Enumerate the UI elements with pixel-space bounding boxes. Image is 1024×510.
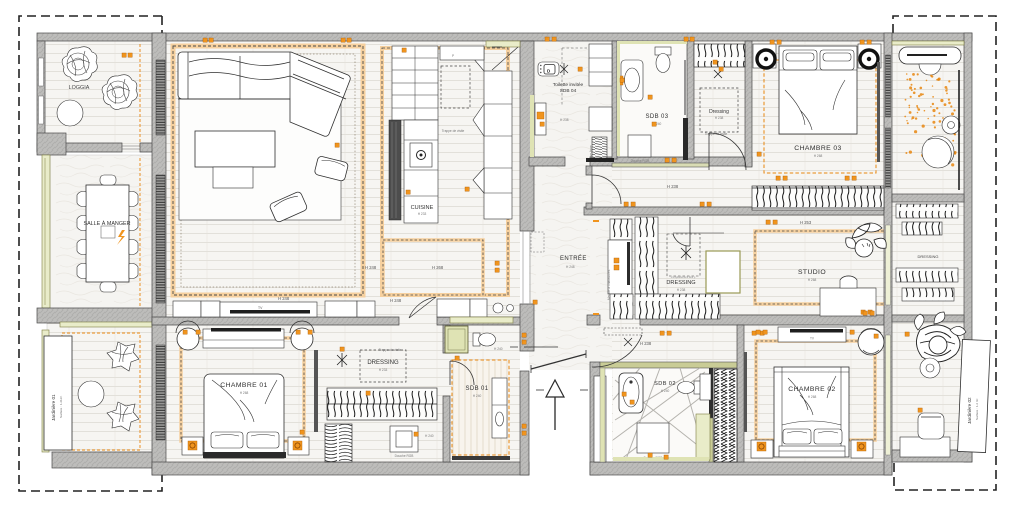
svg-text:H 238: H 238 xyxy=(667,184,679,189)
svg-text:Surface : 1.21m²: Surface : 1.21m² xyxy=(59,396,63,418)
svg-text:SDB 03: SDB 03 xyxy=(645,114,668,120)
svg-text:SALLE À MANGER: SALLE À MANGER xyxy=(83,220,130,227)
svg-text:CHAMBRE 02: CHAMBRE 02 xyxy=(788,386,835,393)
svg-text:CUISINE: CUISINE xyxy=(411,205,434,211)
svg-text:H 253: H 253 xyxy=(800,220,812,225)
svg-text:Meuble à chaussures: Meuble à chaussures xyxy=(607,269,611,300)
svg-text:H 240: H 240 xyxy=(661,389,670,393)
svg-text:H 238: H 238 xyxy=(640,341,652,346)
svg-text:H 238: H 238 xyxy=(677,288,686,292)
svg-text:Dressing: Dressing xyxy=(709,109,729,115)
svg-text:SDB 01: SDB 01 xyxy=(465,386,488,392)
svg-text:H 268: H 268 xyxy=(814,154,823,158)
svg-text:H 248: H 248 xyxy=(278,296,290,301)
svg-text:H 238: H 238 xyxy=(715,116,724,120)
svg-text:Jardinière 01: Jardinière 01 xyxy=(51,394,56,421)
svg-text:Douche RGB: Douche RGB xyxy=(395,454,414,458)
svg-text:ENTRÉE: ENTRÉE xyxy=(560,255,587,262)
svg-text:Douche RGB: Douche RGB xyxy=(631,159,650,163)
svg-text:H 268: H 268 xyxy=(808,395,817,399)
svg-text:Trappe de visite: Trappe de visite xyxy=(379,348,402,352)
svg-text:H 233: H 233 xyxy=(379,368,388,372)
svg-text:P: P xyxy=(452,54,454,58)
svg-text:Trappe de visite: Trappe de visite xyxy=(442,129,465,133)
svg-text:H 268: H 268 xyxy=(240,391,249,395)
svg-text:Toilette invitée: Toilette invitée xyxy=(553,82,584,88)
svg-text:LOGGIA: LOGGIA xyxy=(69,85,90,91)
svg-text:DRESSING: DRESSING xyxy=(918,254,939,259)
svg-text:H 240: H 240 xyxy=(473,394,482,398)
svg-text:STUDIO: STUDIO xyxy=(798,269,826,276)
svg-text:Surface : 1.2 m²: Surface : 1.2 m² xyxy=(975,399,979,420)
svg-text:H 233: H 233 xyxy=(418,212,427,216)
svg-text:DRESSING: DRESSING xyxy=(367,360,399,366)
svg-text:DRESSING: DRESSING xyxy=(666,280,695,286)
svg-text:CHAMBRE 01: CHAMBRE 01 xyxy=(220,382,267,389)
svg-text:H 240: H 240 xyxy=(494,347,503,351)
svg-text:SDB 02: SDB 02 xyxy=(654,381,676,387)
svg-text:H 268: H 268 xyxy=(432,265,444,270)
svg-text:H 248: H 248 xyxy=(365,265,377,270)
svg-text:H 248: H 248 xyxy=(390,298,402,303)
svg-text:H 240: H 240 xyxy=(425,434,434,438)
svg-text:H 268: H 268 xyxy=(808,278,817,282)
svg-text:H 248: H 248 xyxy=(566,265,575,269)
svg-text:SDB 04: SDB 04 xyxy=(560,88,577,94)
svg-text:L'emplacement des p: L'emplacement des p xyxy=(671,275,696,279)
svg-text:H 238: H 238 xyxy=(560,118,569,122)
svg-text:TV: TV xyxy=(258,306,263,310)
svg-text:CHAMBRE 03: CHAMBRE 03 xyxy=(794,145,841,152)
svg-text:Jardinière 02: Jardinière 02 xyxy=(967,397,972,424)
